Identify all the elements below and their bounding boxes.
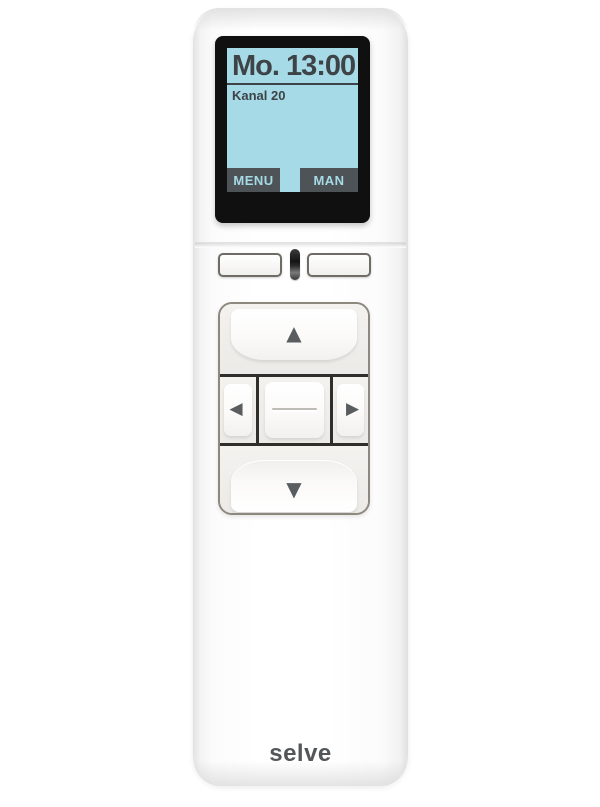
stop-button-face bbox=[265, 382, 324, 438]
softkey-gap bbox=[280, 168, 300, 192]
down-button-face bbox=[231, 460, 357, 512]
softkey-label-menu: MENU bbox=[227, 168, 280, 192]
lcd-display: Mo. 13:00 Kanal 20 MENU MAN bbox=[227, 48, 358, 192]
screen-frame: Mo. 13:00 Kanal 20 MENU MAN bbox=[215, 36, 370, 223]
down-button[interactable]: ▼ bbox=[220, 443, 368, 515]
body-seam bbox=[195, 242, 406, 248]
stop-button-groove bbox=[272, 408, 317, 410]
status-led bbox=[290, 249, 300, 280]
dpad-middle-row: ◀ ▶ bbox=[220, 377, 368, 443]
stop-button[interactable] bbox=[259, 377, 330, 443]
left-button[interactable]: ◀ bbox=[220, 377, 259, 443]
up-button[interactable]: ▲ bbox=[220, 304, 368, 377]
menu-button[interactable] bbox=[218, 253, 282, 277]
man-button[interactable] bbox=[307, 253, 371, 277]
product-photo: Mo. 13:00 Kanal 20 MENU MAN ▲ bbox=[0, 0, 600, 807]
dpad: ▲ ◀ ▶ ▼ bbox=[218, 302, 370, 515]
time-label: Mo. 13:00 bbox=[232, 50, 358, 82]
brand-logo: selve bbox=[193, 740, 408, 768]
left-button-face bbox=[224, 384, 252, 436]
channel-label: Kanal 20 bbox=[232, 88, 358, 103]
right-button[interactable]: ▶ bbox=[330, 377, 368, 443]
remote-control: Mo. 13:00 Kanal 20 MENU MAN ▲ bbox=[193, 8, 408, 786]
title-separator bbox=[227, 83, 358, 85]
softkey-label-man: MAN bbox=[300, 168, 358, 192]
softkey-bar: MENU MAN bbox=[227, 168, 358, 192]
up-button-face bbox=[231, 309, 357, 360]
right-button-face bbox=[337, 384, 364, 436]
